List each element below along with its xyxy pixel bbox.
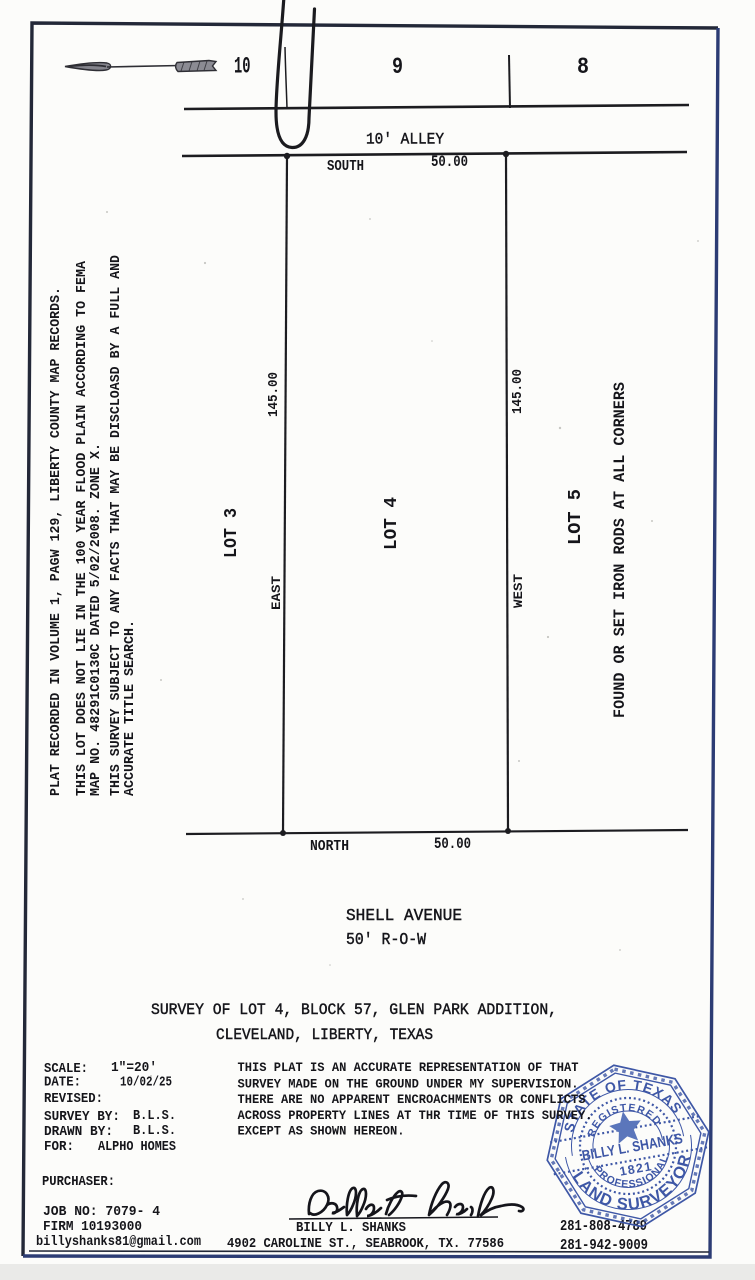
svg-text:281-808-4789: 281-808-4789 <box>560 1218 647 1235</box>
svg-text:WEST: WEST <box>511 574 526 608</box>
svg-text:SHELL AVENUE: SHELL AVENUE <box>346 907 462 926</box>
svg-text:ACCURATE TITLE SEARCH.: ACCURATE TITLE SEARCH. <box>123 620 138 796</box>
svg-text:145.00: 145.00 <box>511 369 526 414</box>
svg-text:50' R-O-W: 50' R-O-W <box>346 931 427 950</box>
svg-text:REVISED:: REVISED: <box>44 1092 103 1107</box>
svg-text:SURVEY OF LOT 4, BLOCK 57, GLE: SURVEY OF LOT 4, BLOCK 57, GLEN PARK ADD… <box>151 1001 557 1019</box>
svg-text:281-942-9009: 281-942-9009 <box>560 1237 648 1254</box>
svg-text:FIRM 10193000: FIRM 10193000 <box>43 1220 142 1235</box>
svg-text:145.00: 145.00 <box>267 372 282 417</box>
svg-text:PLAT RECORDED IN VOLUME 1, PAG: PLAT RECORDED IN VOLUME 1, PAGW 129, LIB… <box>49 287 64 796</box>
svg-text:FOUND OR SET IRON RODS AT ALL: FOUND OR SET IRON RODS AT ALL CORNERS <box>611 382 629 718</box>
svg-text:50.00: 50.00 <box>434 835 471 853</box>
svg-text:billyshanks81@gmail.com: billyshanks81@gmail.com <box>36 1235 201 1250</box>
svg-text:FOR:: FOR: <box>44 1140 74 1155</box>
svg-text:SOUTH: SOUTH <box>327 158 364 175</box>
svg-text:DRAWN BY:: DRAWN BY: <box>44 1125 113 1140</box>
svg-text:8: 8 <box>577 54 589 81</box>
svg-text:NORTH: NORTH <box>310 838 349 855</box>
svg-text:LOT 4: LOT 4 <box>381 497 402 550</box>
svg-text:SURVEY MADE ON THE GROUND UNDE: SURVEY MADE ON THE GROUND UNDER MY SUPER… <box>238 1077 579 1092</box>
svg-text:DATE:: DATE: <box>44 1076 81 1091</box>
svg-text:ALPHO HOMES: ALPHO HOMES <box>98 1140 176 1155</box>
svg-text:LOT 3: LOT 3 <box>221 508 242 558</box>
svg-text:THERE ARE NO APPARENT ENCROACH: THERE ARE NO APPARENT ENCROACHMENTS OR C… <box>238 1092 586 1107</box>
svg-text:THIS PLAT IS AN ACCURATE REPRE: THIS PLAT IS AN ACCURATE REPRESENTATION … <box>238 1060 579 1075</box>
svg-text:1"=20': 1"=20' <box>111 1061 157 1076</box>
svg-text:EXCEPT AS SHOWN HEREON.: EXCEPT AS SHOWN HEREON. <box>238 1124 405 1139</box>
svg-text:9: 9 <box>392 54 403 81</box>
svg-text:JOB NO: 7079- 4: JOB NO: 7079- 4 <box>43 1205 160 1220</box>
svg-text:B.L.S.: B.L.S. <box>133 1109 176 1124</box>
svg-text:10: 10 <box>234 54 251 81</box>
svg-text:THIS LOT DOES NOT LIE IN THE 1: THIS LOT DOES NOT LIE IN THE 100 YEAR FL… <box>75 260 90 796</box>
svg-text:10' ALLEY: 10' ALLEY <box>366 131 444 149</box>
svg-text:B.L.S.: B.L.S. <box>133 1124 176 1139</box>
svg-text:BILLY L. SHANKS: BILLY L. SHANKS <box>296 1220 406 1236</box>
svg-text:LOT 5: LOT 5 <box>565 489 586 545</box>
svg-text:4902 CAROLINE ST., SEABROOK, T: 4902 CAROLINE ST., SEABROOK, TX. 77586 <box>227 1236 504 1252</box>
svg-text:PURCHASER:: PURCHASER: <box>42 1175 115 1190</box>
svg-text:MAP NO. 48291C0130C DATED 5/02: MAP NO. 48291C0130C DATED 5/02/2008. ZON… <box>89 443 104 796</box>
svg-text:THIS SURVEY SUBJECT TO ANY FAC: THIS SURVEY SUBJECT TO ANY FACTS THAT MA… <box>109 255 124 796</box>
svg-text:10/02/25: 10/02/25 <box>120 1076 172 1091</box>
svg-text:CLEVELAND, LIBERTY, TEXAS: CLEVELAND, LIBERTY, TEXAS <box>216 1026 433 1044</box>
svg-text:ACROSS PROPERTY LINES AT THR T: ACROSS PROPERTY LINES AT THR TIME OF THI… <box>238 1108 593 1123</box>
svg-text:50.00: 50.00 <box>431 153 468 171</box>
svg-text:EAST: EAST <box>269 576 284 610</box>
svg-text:SURVEY BY:: SURVEY BY: <box>44 1110 120 1125</box>
